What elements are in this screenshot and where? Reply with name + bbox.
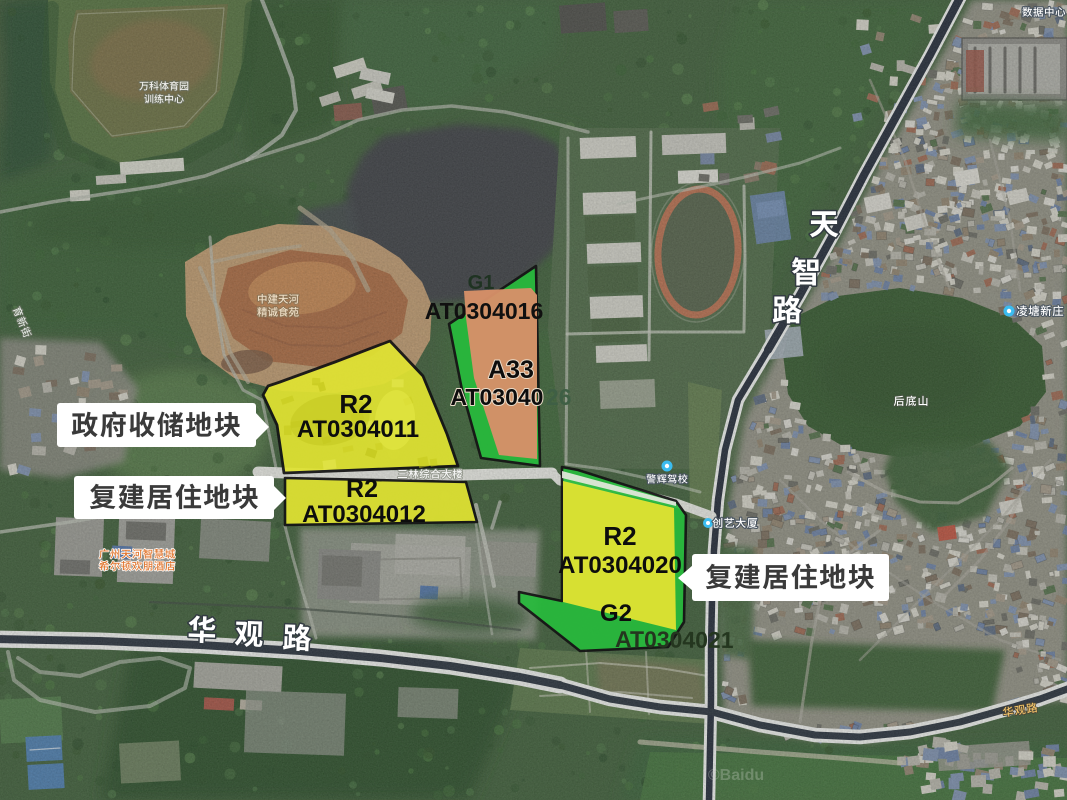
svg-text:R2: R2 <box>603 521 636 551</box>
svg-text:A33: A33 <box>488 356 534 384</box>
svg-text:AT0304011: AT0304011 <box>297 416 419 443</box>
svg-text:AT03040: AT03040 <box>451 384 544 410</box>
svg-text:AT0304012: AT0304012 <box>302 501 426 528</box>
svg-text:R2: R2 <box>346 475 378 503</box>
svg-text:AT0304016: AT0304016 <box>425 298 544 324</box>
svg-text:R2: R2 <box>339 389 372 419</box>
svg-text:G1: G1 <box>468 272 495 294</box>
svg-text:G2: G2 <box>600 600 632 627</box>
svg-text:AT0304020: AT0304020 <box>558 552 682 579</box>
svg-text:©Baidu: ©Baidu <box>708 767 764 784</box>
svg-text:26: 26 <box>546 384 572 410</box>
svg-text:AT0304021: AT0304021 <box>615 626 734 653</box>
